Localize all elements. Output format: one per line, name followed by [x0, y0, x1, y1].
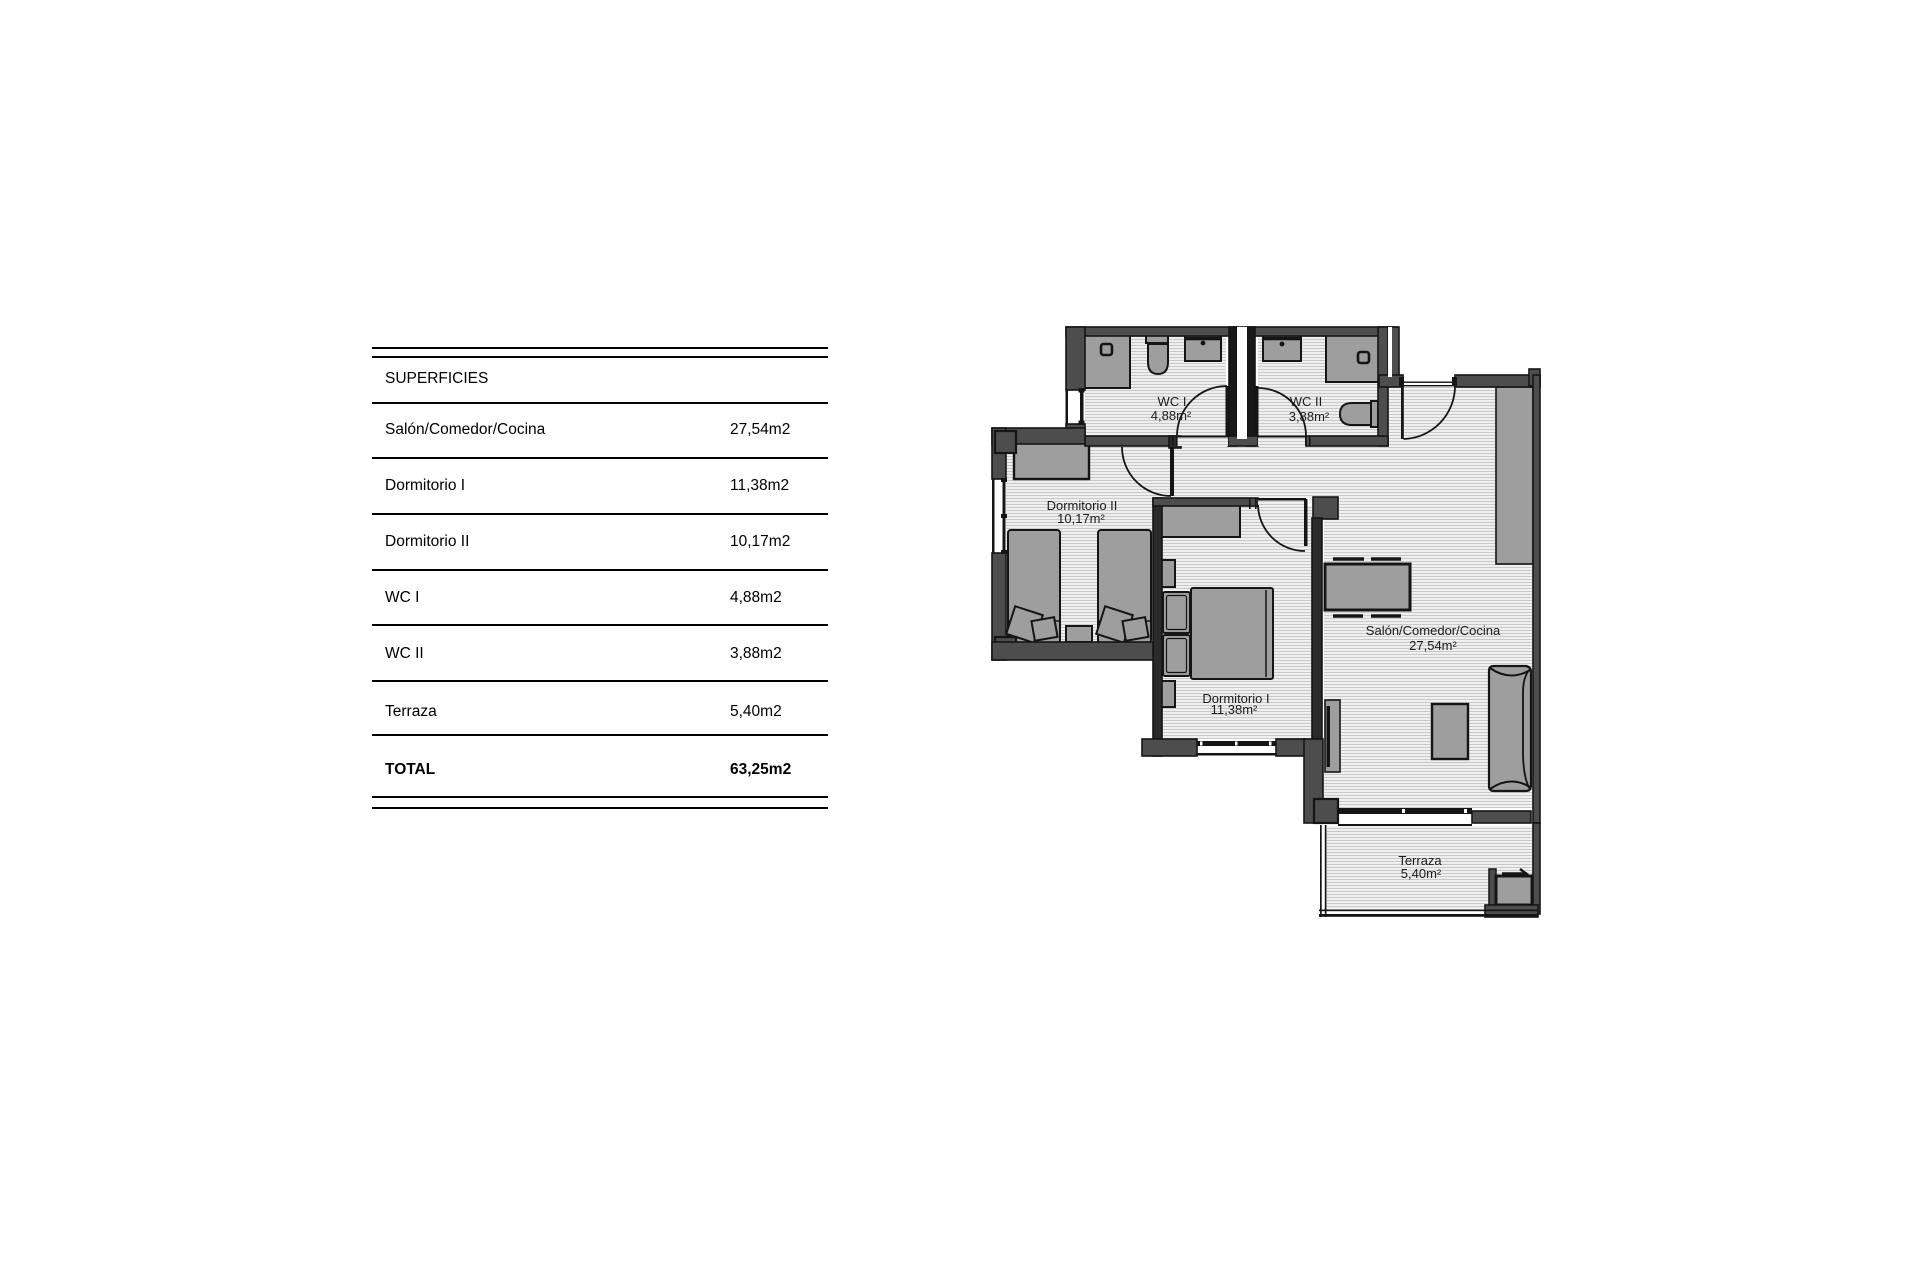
svg-text:11,38m²: 11,38m² [1211, 702, 1258, 717]
svg-text:4,88m²: 4,88m² [1151, 408, 1192, 423]
svg-text:5,40m²: 5,40m² [1401, 866, 1442, 881]
svg-text:WC II: WC II [1290, 394, 1323, 409]
svg-text:Salón/Comedor/Cocina: Salón/Comedor/Cocina [1366, 623, 1501, 638]
svg-text:27,54m²: 27,54m² [1409, 638, 1457, 653]
svg-text:10,17m²: 10,17m² [1057, 511, 1105, 526]
svg-text:3,88m²: 3,88m² [1289, 409, 1330, 424]
svg-text:WC I: WC I [1158, 394, 1187, 409]
